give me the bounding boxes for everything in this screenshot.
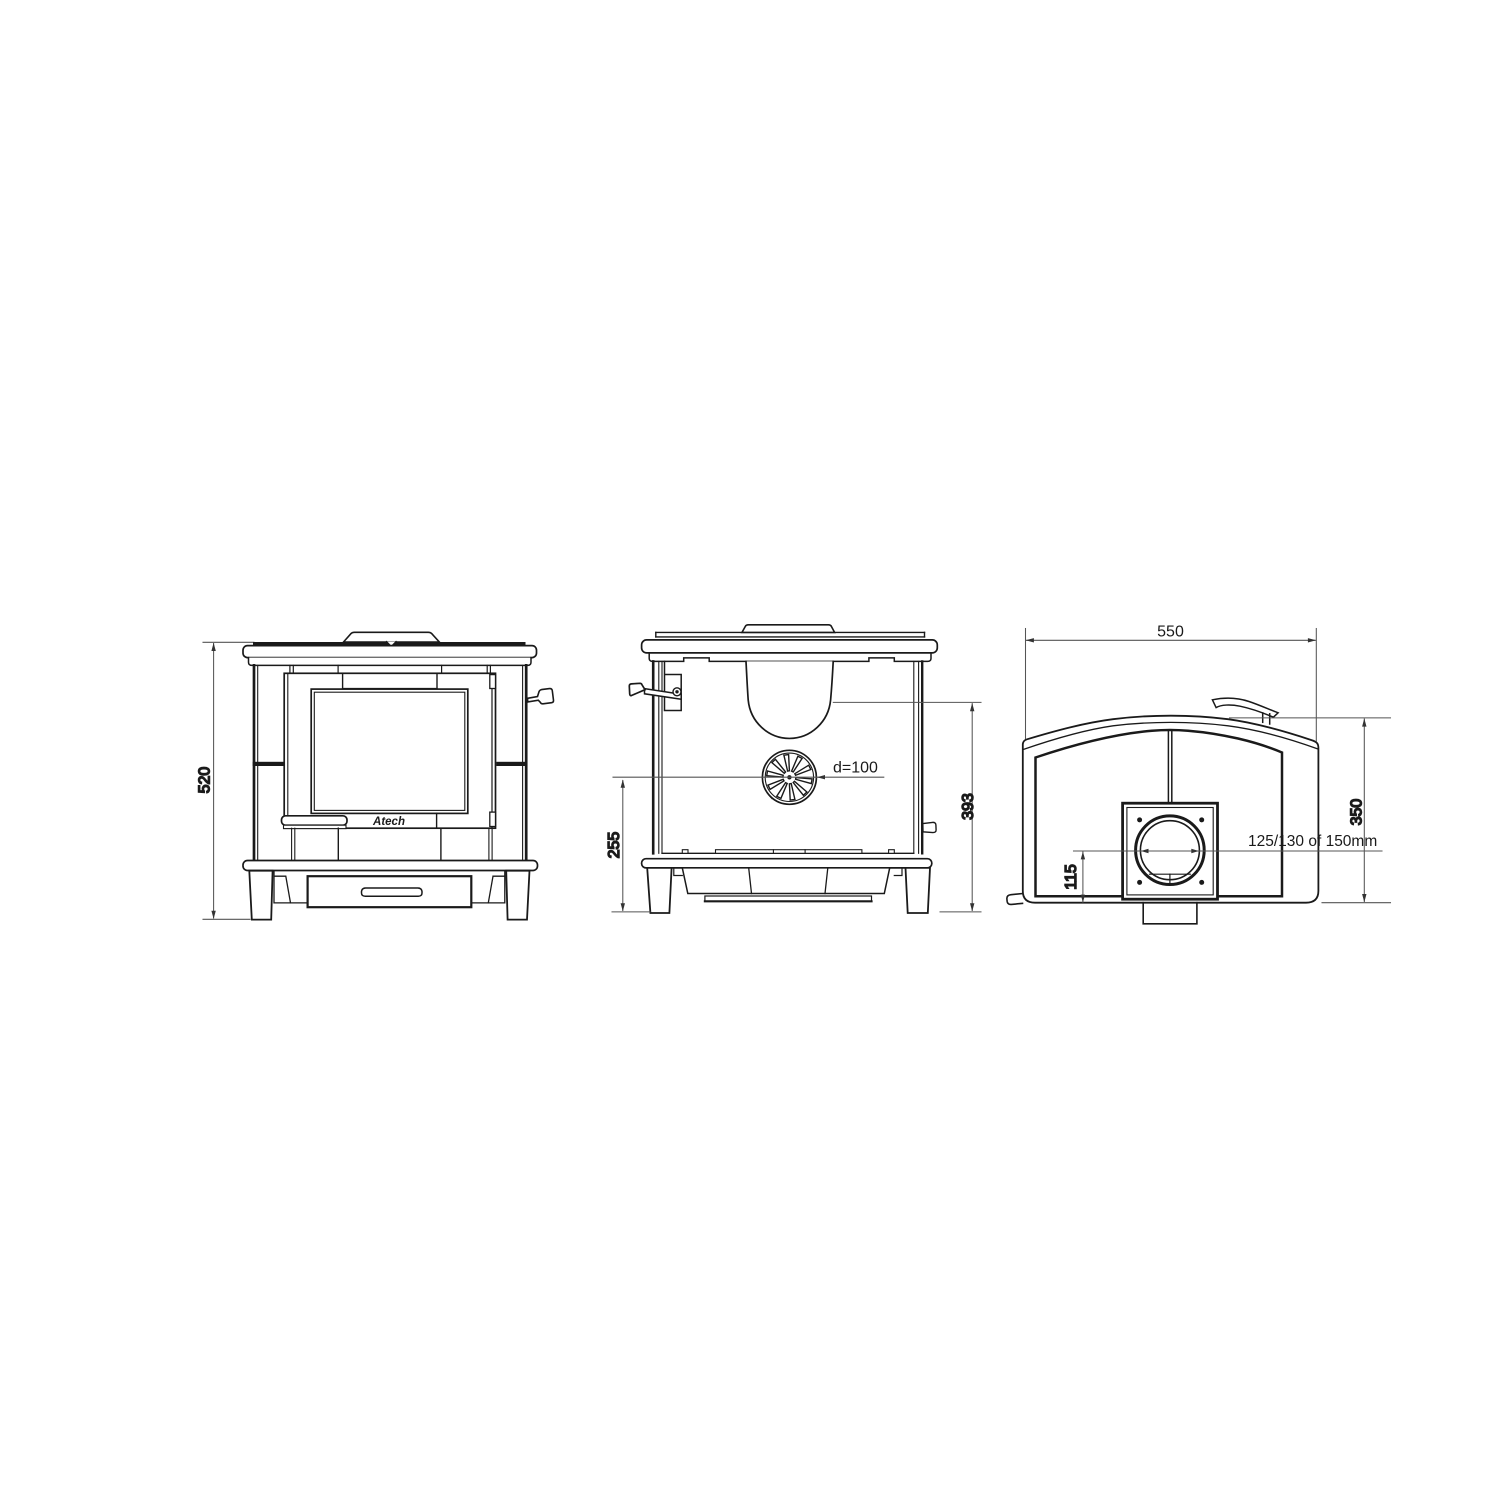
svg-text:393: 393	[960, 793, 977, 820]
svg-text:d=100: d=100	[833, 760, 878, 777]
svg-text:520: 520	[197, 767, 214, 794]
svg-text:125/130 of 150mm: 125/130 of 150mm	[1248, 833, 1377, 850]
svg-text:550: 550	[1157, 624, 1184, 641]
svg-text:350: 350	[1349, 799, 1366, 826]
svg-text:115: 115	[1063, 864, 1080, 890]
svg-text:Atech: Atech	[372, 816, 405, 828]
svg-text:255: 255	[606, 832, 623, 859]
